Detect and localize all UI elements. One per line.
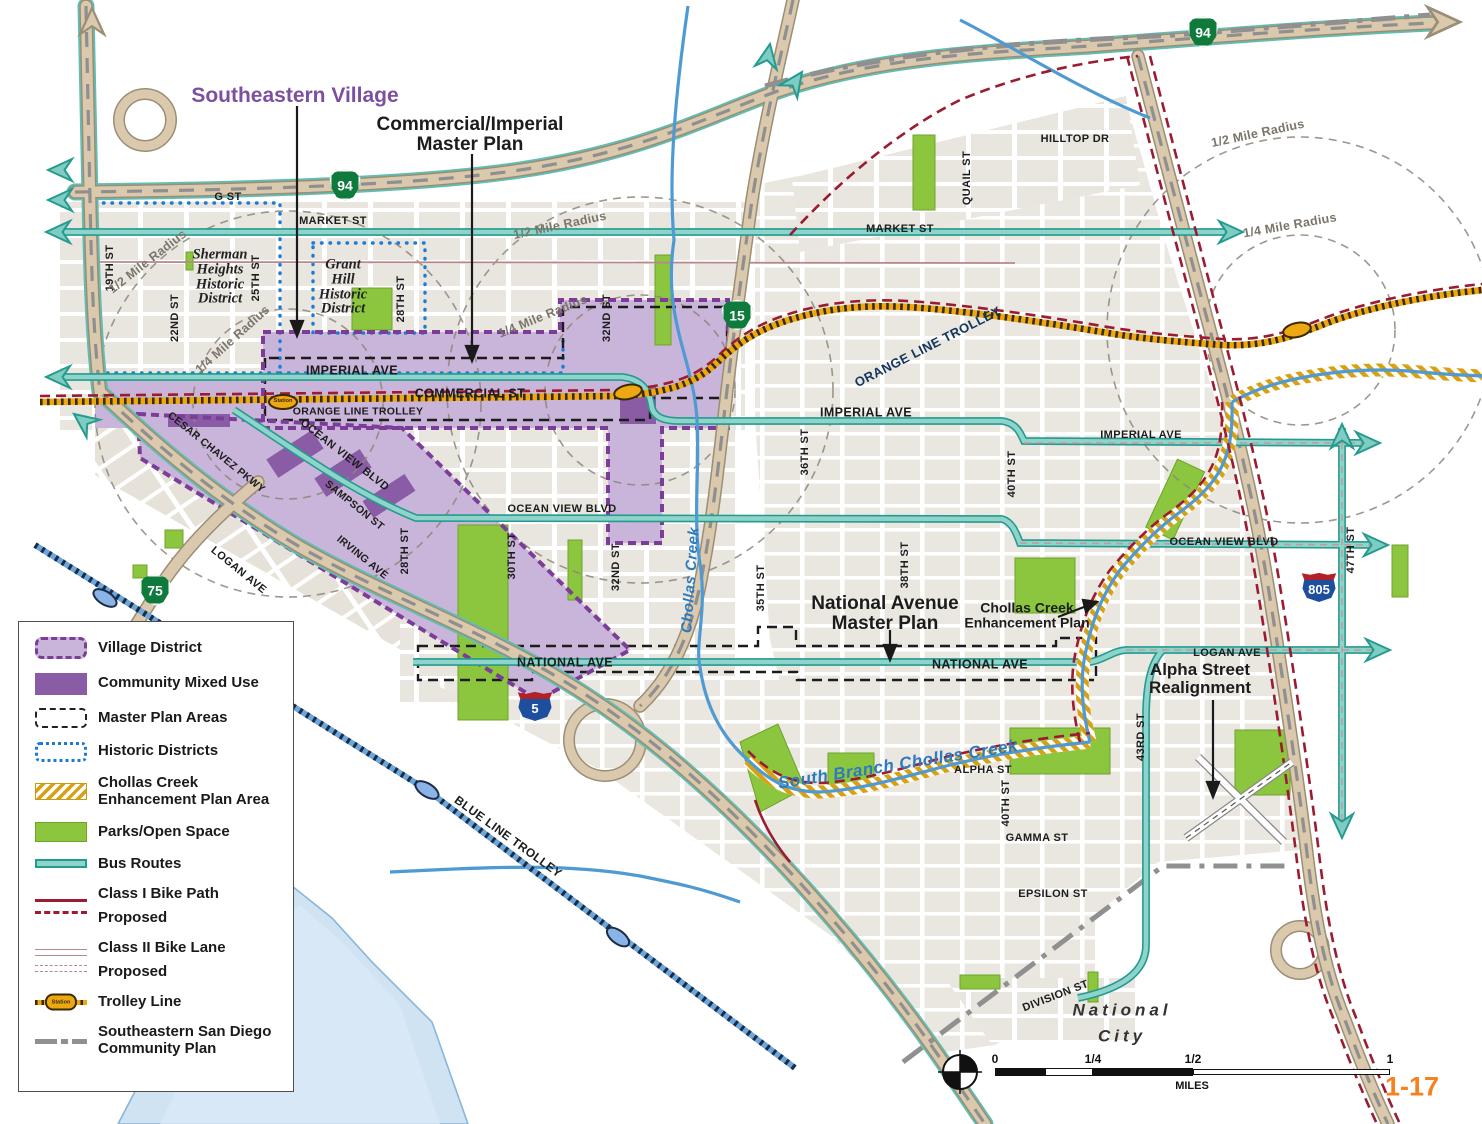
- label-national-ave-east: NATIONAL AVE: [932, 658, 1028, 672]
- legend-item-community-plan-boundary: Southeastern San Diego Community Plan: [35, 1024, 279, 1058]
- bus-routes-swatch: [35, 859, 87, 868]
- legend-label: Master Plan Areas: [98, 710, 228, 727]
- legend-item-village-district: Village District: [35, 637, 279, 659]
- scalebar-segment: [1045, 1068, 1093, 1076]
- legend-item-chollas-creek-enhancement: Chollas Creek Enhancement Plan Area: [35, 775, 279, 809]
- map-legend: Village District Community Mixed Use Mas…: [18, 621, 294, 1092]
- callout-national-avenue-master-plan: National Avenue Master Plan: [811, 594, 958, 634]
- community-mixed-use-swatch: [35, 673, 87, 695]
- scalebar-half: 1/2: [1185, 1052, 1202, 1066]
- community-plan-map-page: G ST MARKET ST MARKET ST HILLTOP DR QUAI…: [0, 0, 1482, 1124]
- label-25th-st: 25TH ST: [251, 255, 263, 302]
- scalebar-segment: [1193, 1069, 1390, 1075]
- scalebar-zero: 0: [992, 1052, 999, 1066]
- legend-label: Trolley Line: [98, 994, 181, 1011]
- label-national-ave-west: NATIONAL AVE: [517, 656, 613, 670]
- legend-label: Bus Routes: [98, 856, 181, 873]
- callout-alpha-street-realignment: Alpha Street Realignment: [1149, 661, 1251, 697]
- legend-label: Southeastern San Diego Community Plan: [98, 1024, 271, 1058]
- label-market-st-west: MARKET ST: [299, 216, 367, 228]
- callout-chollas-creek-enhancement-plan: Chollas Creek Enhancement Plan: [964, 601, 1089, 632]
- label-station: Station: [274, 399, 293, 405]
- legend-item-trolley-line: Station Trolley Line: [35, 994, 279, 1011]
- station-swatch-label: Station: [52, 999, 71, 1005]
- community-plan-swatch: [35, 1039, 87, 1044]
- scalebar-quarter: 1/4: [1085, 1052, 1102, 1066]
- label-sherman-heights-historic-district: Sherman Heights Historic District: [193, 247, 248, 306]
- label-market-st-east: MARKET ST: [866, 224, 934, 236]
- label-32nd-st-north: 32ND ST: [602, 294, 614, 342]
- label-quail-st: QUAIL ST: [962, 151, 974, 205]
- label-35th-st: 35TH ST: [756, 565, 768, 612]
- label-ocean-view-mid: OCEAN VIEW BLVD: [507, 504, 616, 516]
- scalebar-segment: [1093, 1068, 1193, 1076]
- label-g-st: G ST: [214, 192, 241, 204]
- legend-label: Parks/Open Space: [98, 824, 230, 841]
- label-imperial-ave-west: IMPERIAL AVE: [306, 364, 398, 378]
- legend-item-historic-districts: Historic Districts: [35, 742, 279, 762]
- label-logan-ave-east: LOGAN AVE: [1193, 648, 1261, 660]
- trolley-line-swatch: Station: [35, 995, 87, 1009]
- scalebar-one: 1: [1387, 1052, 1394, 1066]
- scalebar-segment: [995, 1068, 1045, 1076]
- label-ocean-view-east: OCEAN VIEW BLVD: [1169, 537, 1278, 549]
- class2-bike-swatch: [35, 949, 87, 972]
- legend-item-parks-open-space: Parks/Open Space: [35, 822, 279, 842]
- legend-label: Community Mixed Use: [98, 675, 259, 692]
- legend-label: Class I Bike Path: [98, 886, 219, 903]
- legend-label-proposed: Proposed: [98, 964, 226, 981]
- label-epsilon-st: EPSILON ST: [1018, 889, 1087, 901]
- callout-commercial-imperial-master-plan: Commercial/Imperial Master Plan: [377, 115, 564, 155]
- label-imperial-ave-east: IMPERIAL AVE: [1100, 430, 1182, 442]
- legend-label: Class II Bike Lane: [98, 940, 226, 957]
- scalebar-unit: MILES: [1175, 1080, 1209, 1092]
- label-40th-st-south: 40TH ST: [1001, 780, 1013, 827]
- label-43rd-st: 43RD ST: [1136, 713, 1148, 761]
- label-28th-st-south: 28TH ST: [400, 528, 412, 575]
- legend-item-master-plan-areas: Master Plan Areas: [35, 708, 279, 728]
- label-32nd-st-south: 32ND ST: [611, 543, 623, 591]
- label-orange-line-trolley-west: ORANGE LINE TROLLEY: [293, 406, 424, 417]
- legend-label-proposed: Proposed: [98, 910, 219, 927]
- label-38th-st: 38TH ST: [900, 542, 912, 589]
- callout-southeastern-village: Southeastern Village: [191, 85, 398, 107]
- class1-bike-swatch: [35, 899, 87, 914]
- label-imperial-ave-mid: IMPERIAL AVE: [820, 406, 912, 420]
- historic-districts-swatch: [35, 742, 87, 762]
- legend-item-community-mixed-use: Community Mixed Use: [35, 673, 279, 695]
- master-plan-swatch: [35, 708, 87, 728]
- label-hilltop-dr: HILLTOP DR: [1041, 134, 1110, 146]
- label-grant-hill-historic-district: Grant Hill Historic District: [319, 257, 367, 316]
- legend-item-class1-bike-path: Class I Bike Path Proposed: [35, 886, 279, 927]
- label-36th-st: 36TH ST: [800, 429, 812, 476]
- label-alpha-st: ALPHA ST: [954, 765, 1012, 777]
- legend-label: Historic Districts: [98, 743, 218, 760]
- label-national-city: National City: [1072, 998, 1171, 1049]
- legend-item-class2-bike-lane: Class II Bike Lane Proposed: [35, 940, 279, 981]
- village-district-swatch: [35, 637, 87, 659]
- parks-swatch: [35, 822, 87, 842]
- label-47th-st: 47TH ST: [1346, 527, 1358, 574]
- label-30th-st: 30TH ST: [507, 533, 519, 580]
- label-gamma-st: GAMMA ST: [1006, 833, 1069, 845]
- page-number: 1-17: [1385, 1072, 1439, 1103]
- legend-item-bus-routes: Bus Routes: [35, 856, 279, 873]
- legend-label: Chollas Creek Enhancement Plan Area: [98, 775, 269, 809]
- label-22nd-st: 22ND ST: [170, 294, 182, 342]
- label-commercial-st: COMMERCIAL ST: [415, 387, 526, 401]
- chollas-enhancement-swatch: [35, 783, 87, 800]
- label-40th-st-north: 40TH ST: [1007, 451, 1019, 498]
- label-28th-st-north: 28TH ST: [396, 276, 408, 323]
- legend-label: Village District: [98, 640, 202, 657]
